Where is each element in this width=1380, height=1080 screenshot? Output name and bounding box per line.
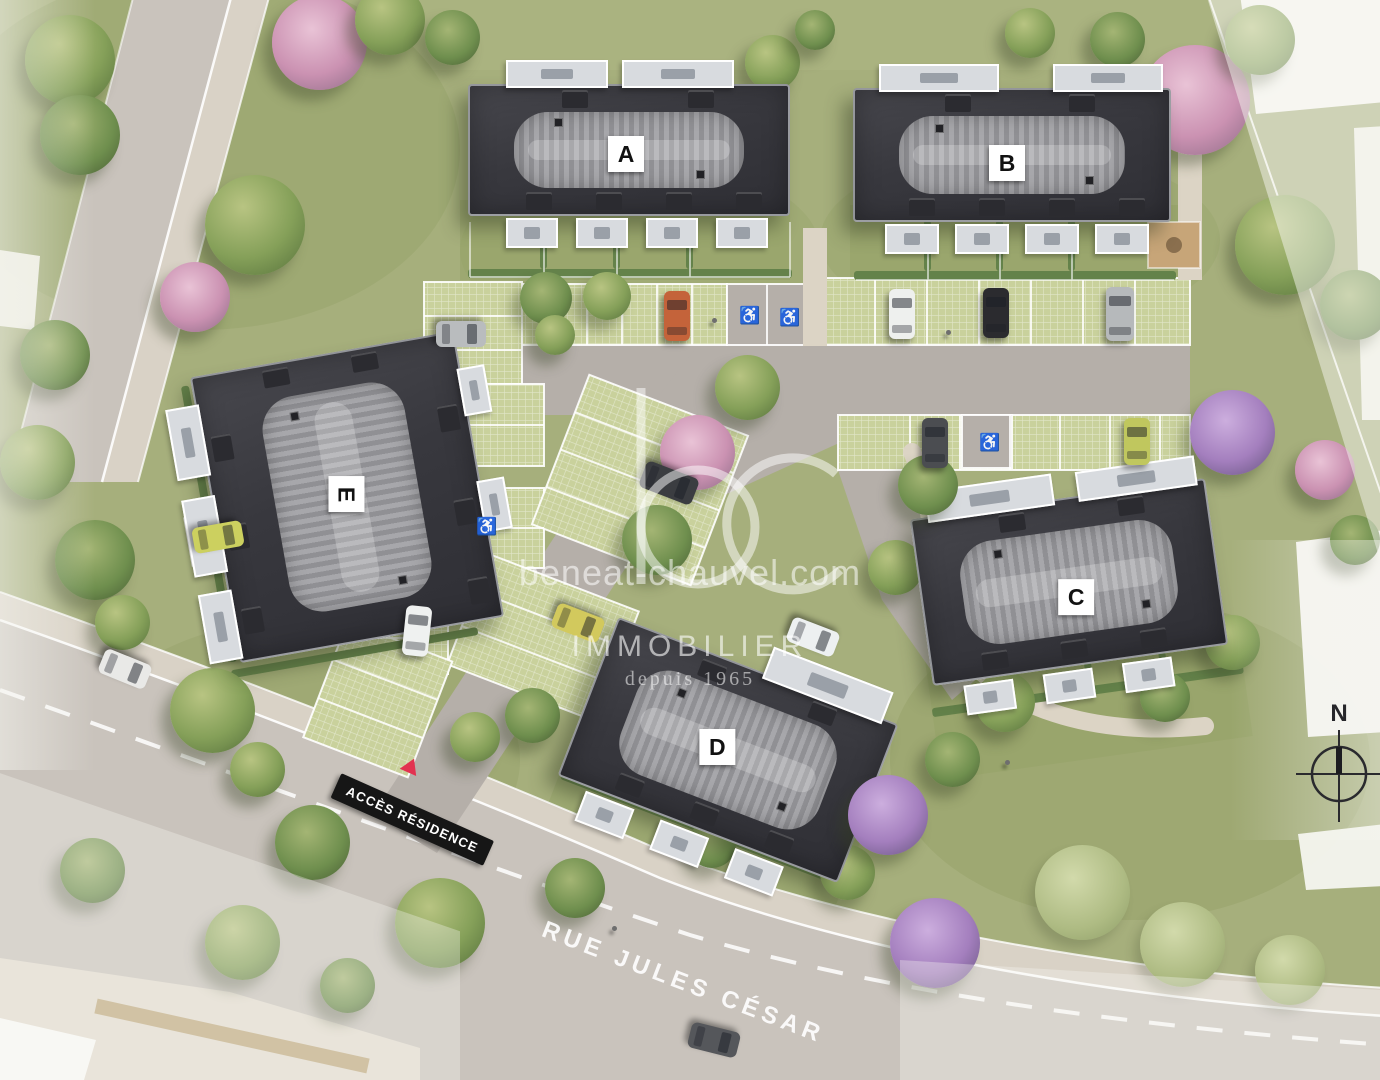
dormer [1117,495,1145,516]
dormer [467,576,491,605]
building-e: E [190,331,504,663]
building-b: B [853,88,1171,222]
tree [40,95,120,175]
car [983,288,1009,338]
tree [622,505,692,575]
roof-vent [993,549,1003,559]
tree [848,775,928,855]
dormer [437,404,461,433]
tree [320,958,375,1013]
dormer [909,198,935,216]
roof-vent [696,170,705,179]
compass-needle [1336,747,1342,774]
dormer [981,649,1009,670]
handicap-parking-icon: ♿ [476,517,497,537]
tree [55,520,135,600]
dormer [241,606,265,635]
tree [795,10,835,50]
person [612,926,617,931]
roof-vent [1141,599,1151,609]
car [1106,287,1134,341]
tree [1035,845,1130,940]
tree [545,858,605,918]
dormer [453,497,477,526]
roof-terrace [1053,64,1163,92]
dormer [945,94,971,112]
dormer [736,192,762,210]
tree [890,898,980,988]
dormer [596,192,622,210]
dormer [1069,94,1095,112]
tree [95,595,150,650]
tree [535,315,575,355]
tree [745,35,800,90]
tree [25,15,115,105]
roof-vent [935,124,944,133]
tree [1255,935,1325,1005]
roof-terrace [879,64,999,92]
tree [275,805,350,880]
handicap-parking-icon: ♿ [779,308,800,328]
building-a: A [468,84,790,216]
tree [715,355,780,420]
compass: N [1296,700,1380,824]
dormer [1139,627,1167,648]
roof-vent [1085,176,1094,185]
tree [205,175,305,275]
dormer [262,366,291,388]
roof-terrace [506,60,608,88]
dormer [1049,198,1075,216]
handicap-parking-icon: ♿ [739,306,760,326]
building-label-a: A [608,136,644,172]
handicap-parking-icon: ♿ [979,433,1000,453]
garden-patio [1095,224,1149,254]
tree [425,10,480,65]
tree [1190,390,1275,475]
garden-patio [506,218,558,248]
tree [583,272,631,320]
tree [1295,440,1355,500]
garden-patio [576,218,628,248]
tree [1090,12,1145,67]
tree [170,668,255,753]
tree [205,905,280,980]
tree [395,878,485,968]
garden-patio [646,218,698,248]
tree [0,425,75,500]
garden-patio [885,224,939,254]
car [1124,418,1150,465]
roof-vent [289,411,299,421]
car [401,605,432,657]
dormer [764,829,795,855]
tree [1005,8,1055,58]
roof-vent [398,575,408,585]
tree [450,712,500,762]
compass-rose-icon [1296,728,1380,824]
tree [60,838,125,903]
dormer [1119,198,1145,216]
dormer [562,90,588,108]
person [1005,760,1010,765]
car [436,321,486,347]
tree [1225,5,1295,75]
garden-patio [716,218,768,248]
car [922,418,948,468]
dormer [210,433,234,462]
tree [1140,902,1225,987]
garden-patio [1025,224,1079,254]
building-label-b: B [989,145,1025,181]
building-label-d: D [699,729,735,765]
dormer [350,351,379,373]
person [946,330,951,335]
person [712,318,717,323]
site-plan: A B C [0,0,1380,1080]
tree [1330,515,1380,565]
dormer [1060,638,1088,659]
dormer [666,192,692,210]
building-label-e: E [328,476,364,512]
tree [20,320,90,390]
compass-north-label: N [1296,700,1380,728]
tree [505,688,560,743]
tree [1235,195,1335,295]
dormer [998,512,1026,533]
tree [925,732,980,787]
garden-patio [955,224,1009,254]
dormer [688,90,714,108]
dormer [615,772,646,798]
roof-terrace [622,60,734,88]
car [889,289,915,339]
roof-vent [554,118,563,127]
dormer [526,192,552,210]
building-label-c: C [1058,579,1094,615]
dormer [979,198,1005,216]
tree [230,742,285,797]
dormer [689,801,720,827]
car [664,291,690,341]
tree [160,262,230,332]
